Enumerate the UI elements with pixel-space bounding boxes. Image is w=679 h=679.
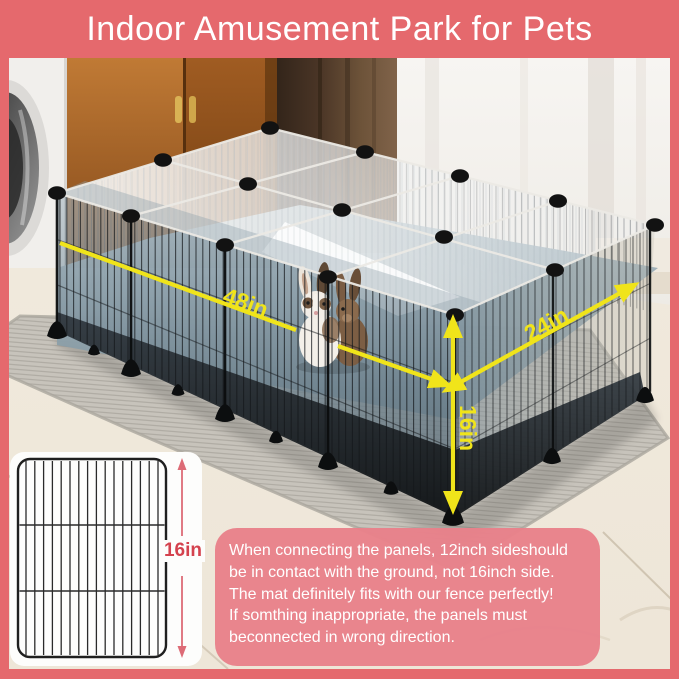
- connection-note: When connecting the panels, 12inch sides…: [215, 528, 600, 666]
- note-line: be in contact with the ground, not 16inc…: [229, 562, 586, 584]
- product-image: 48in 24in 16in 16in When connecting the …: [0, 0, 679, 679]
- note-line: The mat definitely fits with our fence p…: [229, 584, 586, 606]
- height-label: 16in: [455, 405, 481, 451]
- wardrobe-handle: [175, 96, 182, 123]
- wardrobe-handle: [189, 96, 196, 123]
- panel-height-label: 16in: [161, 540, 205, 562]
- product-title: Indoor Amusement Park for Pets: [86, 10, 592, 49]
- header-banner: Indoor Amusement Park for Pets: [0, 0, 679, 58]
- panel-size-card: 16in: [10, 452, 202, 666]
- note-line: beconnected in wrong direction.: [229, 627, 586, 649]
- frame-border: [0, 58, 9, 679]
- frame-border: [0, 669, 679, 679]
- note-line: If somthing inappropriate, the panels mu…: [229, 605, 586, 627]
- frame-border: [670, 58, 679, 679]
- note-line: When connecting the panels, 12inch sides…: [229, 540, 586, 562]
